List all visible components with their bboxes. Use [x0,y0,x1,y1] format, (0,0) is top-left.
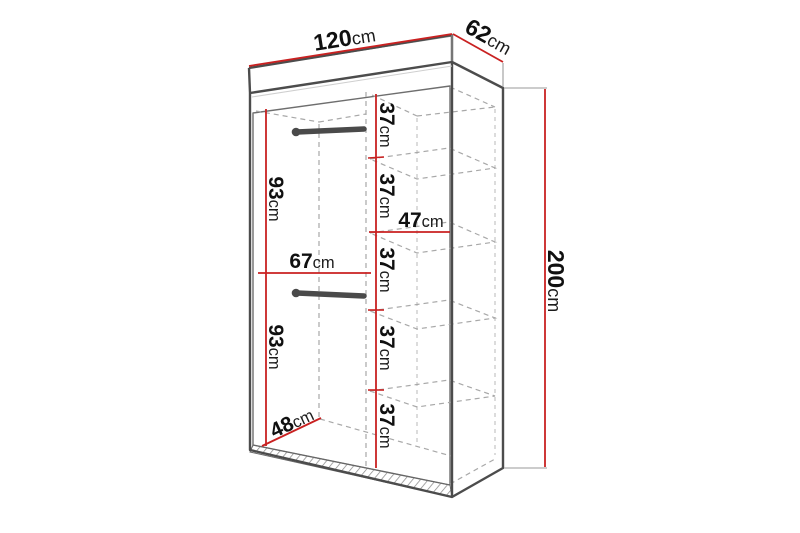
shelf-gap-3-label: 37cm [375,247,398,292]
hanging-rail-top [297,129,364,132]
hanging-rail-bottom [297,293,364,296]
right-section-width-label: 47cm [398,209,443,232]
wardrobe-dimension-diagram: 120cm 62cm 200cm 93cm 93cm 67cm 47cm 48c… [0,0,800,533]
shelf-gap-4-label: 37cm [375,325,398,370]
depth-label: 62cm [461,13,517,60]
hanging-bottom-label: 93cm [264,324,287,369]
shelf-gap-2-label: 37cm [375,173,398,218]
hanging-top-label: 93cm [264,176,287,221]
hanging-rail-bottom-cap [292,289,301,298]
shelf-gap-1-label: 37cm [375,102,398,147]
dim-tick-shelf-1 [368,157,384,158]
height-label: 200cm [543,250,569,312]
left-section-width-label: 67cm [289,250,334,273]
shelf-gap-5-label: 37cm [375,403,398,448]
hanging-rail-top-cap [292,128,301,137]
